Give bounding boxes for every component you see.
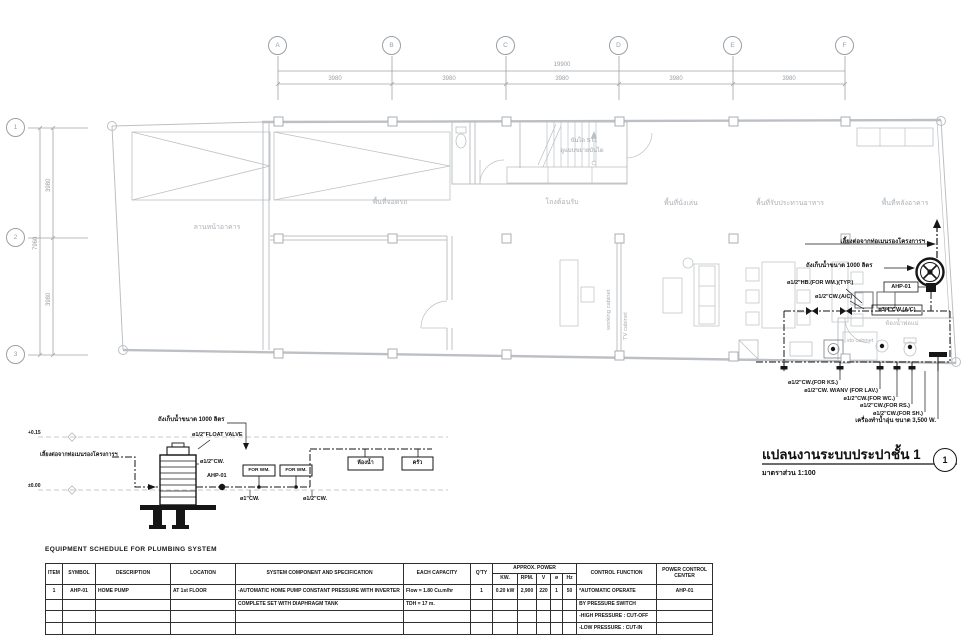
col-header-description: DESCRIPTION (96, 564, 171, 585)
tank-detail-diagram (38, 423, 448, 529)
drawing-title: แปลนงานระบบประปาชั้น 1 (762, 443, 921, 465)
grid-label-b: B (389, 42, 393, 49)
grid-bubble-b: B (382, 36, 401, 55)
col-header-capacity: EACH CAPACITY (404, 564, 471, 585)
cell-pcc: AHP-01 (657, 585, 713, 600)
cell-empty (518, 611, 537, 623)
note-main-tap: เลี้ยงต่อจากท่อเมนรองโครงการฯ (840, 239, 925, 246)
detail-tank-label: ถังเก็บน้ำขนาด 1000 ลิตร (158, 417, 224, 424)
cell-qty: 1 (471, 585, 493, 600)
grid-bubble-c: C (496, 36, 515, 55)
grid-label-d: D (616, 42, 621, 49)
detail-level-bottom: ±0.00 (28, 484, 40, 490)
cell-empty (537, 600, 551, 611)
cell-empty (563, 611, 577, 623)
cell-empty (518, 623, 537, 635)
col-header-rpm: RPM. (518, 574, 537, 585)
cell-empty (96, 623, 171, 635)
note-cw-rs: ø1/2"CW.(FOR RS.) (860, 403, 910, 409)
grid-bubble-2: 2 (6, 228, 25, 247)
cell-location: AT 1st FLOOR (171, 585, 236, 600)
note-tank: ถังเก็บน้ำขนาด 1000 ลิตร (806, 263, 872, 270)
cell-empty (171, 623, 236, 635)
cell-empty (657, 623, 713, 635)
grid-bubble-1: 1 (6, 118, 25, 137)
room-label-bathroom: ห้องน้ำพ่อแม่ (885, 321, 918, 328)
room-label-front-yard: ลานหน้าอาคาร (194, 224, 241, 232)
cell-empty (493, 600, 518, 611)
room-label-dining: พื้นที่รับประทานอาหาร (756, 200, 824, 208)
cell-empty (404, 611, 471, 623)
cell-control: *AUTOMATIC OPERATE (577, 585, 657, 600)
detail-box-wm2: FOR WM. (280, 465, 312, 476)
cell-empty (551, 611, 563, 623)
grid-label-a: A (275, 42, 279, 49)
cell-system-spec: COMPLETE SET WITH DIAPHRAGM TANK (236, 600, 404, 611)
col-header-symbol: SYMBOL (63, 564, 96, 585)
note-pump-tag: AHP-01 (884, 283, 918, 292)
drawing-ref-number: 1 (942, 455, 947, 465)
detail-level-top: +0.15 (28, 431, 41, 437)
tv-cabinet-label: TV cabinet (623, 312, 629, 340)
detail-box-bath: ห้องน้ำ (348, 457, 383, 470)
cell-empty (171, 611, 236, 623)
cell-symbol: AHP-01 (63, 585, 96, 600)
cell-v: 220 (537, 585, 551, 600)
grid-bubble-d: D (609, 36, 628, 55)
drawing-sheet: A B C D E F 1 2 3 19900 3980 3980 3980 3… (0, 0, 968, 642)
col-header-qty: Q'TY (471, 564, 493, 585)
col-header-location: LOCATION (171, 564, 236, 585)
cell-empty (563, 623, 577, 635)
room-label-parking: พื้นที่จอดรถ (373, 199, 408, 207)
room-label-back-area: พื้นที่หลังอาคาร (882, 200, 929, 208)
cell-empty (404, 623, 471, 635)
cell-empty (171, 600, 236, 611)
detail-box-wm1: FOR WM. (243, 465, 275, 476)
note-cw-sh: ø1/2"CW.(FOR SH.) (873, 411, 923, 417)
cell-hz: 50 (563, 585, 577, 600)
dim-bay-ab: 3980 (328, 76, 341, 83)
cell-empty (46, 600, 63, 611)
schedule-row-4: -LOW PRESSURE : CUT-IN (46, 623, 713, 635)
cell-empty (657, 611, 713, 623)
col-header-v: V (537, 574, 551, 585)
cell-empty (493, 611, 518, 623)
grid-label-e: E (730, 42, 734, 49)
grid-bubble-f: F (835, 36, 854, 55)
grid-label-3: 3 (14, 351, 18, 358)
note-cw-ks: ø1/2"CW.(FOR KS.) (788, 380, 838, 386)
col-header-control: CONTROL FUNCTION (577, 564, 657, 585)
schedule-title: EQUIPMENT SCHEDULE FOR PLUMBING SYSTEM (45, 546, 217, 553)
grid-lines (28, 56, 847, 357)
note-cw-lav: ø1/2"CW. W/ANV (FOR LAV.) (804, 388, 878, 394)
dim-bay-23: 3980 (46, 293, 53, 306)
stair-ref-label: ดูแบบขยายบันได (560, 148, 603, 154)
grid-label-f: F (843, 42, 847, 49)
dim-bay-bc: 3980 (442, 76, 455, 83)
grid-label-c: C (503, 42, 508, 49)
grid-bubble-3: 3 (6, 345, 25, 364)
cell-empty (63, 623, 96, 635)
cell-empty (493, 623, 518, 635)
schedule-row-2: COMPLETE SET WITH DIAPHRAGM TANK TDH = 1… (46, 600, 713, 611)
cell-empty (96, 600, 171, 611)
cell-control: BY PRESSURE SWITCH (577, 600, 657, 611)
dim-total-depth: 7960 (33, 237, 40, 250)
grid-label-1: 1 (14, 124, 18, 131)
note-heater: เครื่องทำน้ำอุ่น ขนาด 3,500 W. (855, 418, 936, 425)
cell-empty (236, 623, 404, 635)
cell-empty (471, 600, 493, 611)
grid-label-2: 2 (14, 234, 18, 241)
cell-phase: 1 (551, 585, 563, 600)
cell-description: HOME PUMP (96, 585, 171, 600)
cell-item: 1 (46, 585, 63, 600)
detail-pump-tag: AHP-01 (207, 473, 227, 479)
building-architecture (108, 117, 961, 367)
detail-inlet-note: เลี้ยงต่อจากท่อเมนรองโครงการฯ (40, 452, 118, 458)
cell-capacity: Flow = 1.80 Cu.m/hr (404, 585, 471, 600)
detail-pipe2-label: ø1/2"CW. (303, 496, 327, 502)
col-header-hz: Hz (563, 574, 577, 585)
cell-capacity: TDH = 17 m. (404, 600, 471, 611)
dim-bay-cd: 3980 (555, 76, 568, 83)
working-cabinet-label: working cabinet (606, 290, 612, 330)
note-cw-ac-34: ø3/4"CW.(A/C) (872, 305, 922, 315)
col-header-power: APPROX. POWER (493, 564, 577, 574)
sto-cabinet-label: sto cabinet (846, 338, 874, 344)
cell-empty (551, 623, 563, 635)
schedule-row-3: -HIGH PRESSURE : CUT-OFF (46, 611, 713, 623)
cell-empty (63, 600, 96, 611)
cell-empty (537, 623, 551, 635)
drawing-scale: มาตราส่วน 1:100 (762, 468, 816, 479)
cell-rpm: 2,900 (518, 585, 537, 600)
col-header-item: ITEM (46, 564, 63, 585)
dim-bay-de: 3980 (669, 76, 682, 83)
grid-bubble-a: A (268, 36, 287, 55)
note-cw-ac-half: ø1/2"CW.(A/C) (815, 294, 852, 300)
cell-empty (236, 611, 404, 623)
drawing-ref-bubble: 1 (933, 448, 957, 472)
note-cw-wc: ø1/2"CW.(FOR WC.) (844, 396, 896, 402)
room-label-living: พื้นที่นั่งเล่น (664, 200, 698, 208)
cell-control: -LOW PRESSURE : CUT-IN (577, 623, 657, 635)
cell-empty (537, 611, 551, 623)
schedule-row-1: 1 AHP-01 HOME PUMP AT 1st FLOOR -AUTOMAT… (46, 585, 713, 600)
cell-empty (551, 600, 563, 611)
note-hb-wm: ø1/2"HB.(FOR WM.)(TYP.) (787, 280, 853, 286)
cell-control: -HIGH PRESSURE : CUT-OFF (577, 611, 657, 623)
stair-name-label: บันได ST1 (571, 138, 598, 144)
grid-bubble-e: E (723, 36, 742, 55)
cell-empty (563, 600, 577, 611)
col-header-system: SYSTEM COMPONENT AND SPECIFICATION (236, 564, 404, 585)
cell-system-spec: -AUTOMATIC HOME PUMP CONSTANT PRESSURE W… (236, 585, 404, 600)
dim-total-width: 19900 (554, 62, 571, 69)
detail-pipe1-label: ø1"CW. (240, 496, 259, 502)
col-header-pcc: POWER CONTROL CENTER (657, 564, 713, 585)
cell-empty (96, 611, 171, 623)
cell-empty (46, 611, 63, 623)
equipment-schedule-table: ITEM SYMBOL DESCRIPTION LOCATION SYSTEM … (45, 563, 713, 635)
dim-bay-ef: 3980 (782, 76, 795, 83)
detail-cw-outlet-label: ø1/2"CW. (200, 459, 224, 465)
detail-float-valve-label: ø1/2"FLOAT VALVE (192, 432, 243, 438)
cell-empty (518, 600, 537, 611)
col-header-kw: KW. (493, 574, 518, 585)
detail-box-kitchen: ครัว (402, 457, 433, 470)
dim-bay-12: 3980 (46, 179, 53, 192)
cell-kw: 0.20 kW (493, 585, 518, 600)
cell-empty (471, 611, 493, 623)
room-label-reception: โถงต้อนรับ (545, 199, 578, 207)
cell-empty (63, 611, 96, 623)
col-header-phase: ø (551, 574, 563, 585)
cell-empty (46, 623, 63, 635)
cell-empty (471, 623, 493, 635)
cell-empty (657, 600, 713, 611)
